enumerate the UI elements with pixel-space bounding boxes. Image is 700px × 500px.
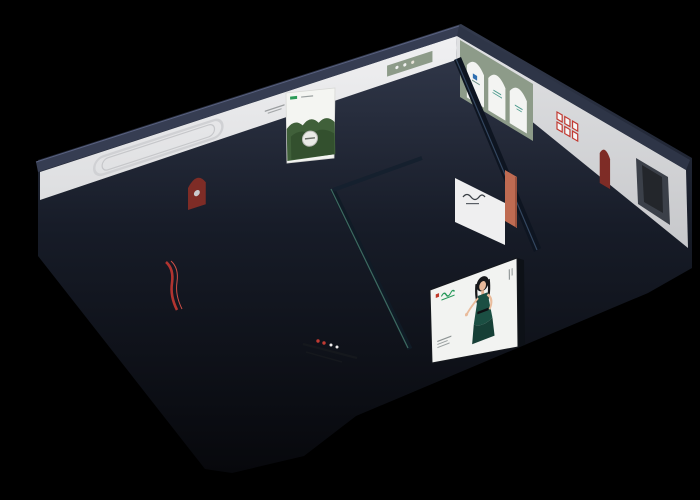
building-base [0, 0, 700, 500]
base-plinth [38, 24, 692, 473]
showroom-render [0, 0, 700, 500]
